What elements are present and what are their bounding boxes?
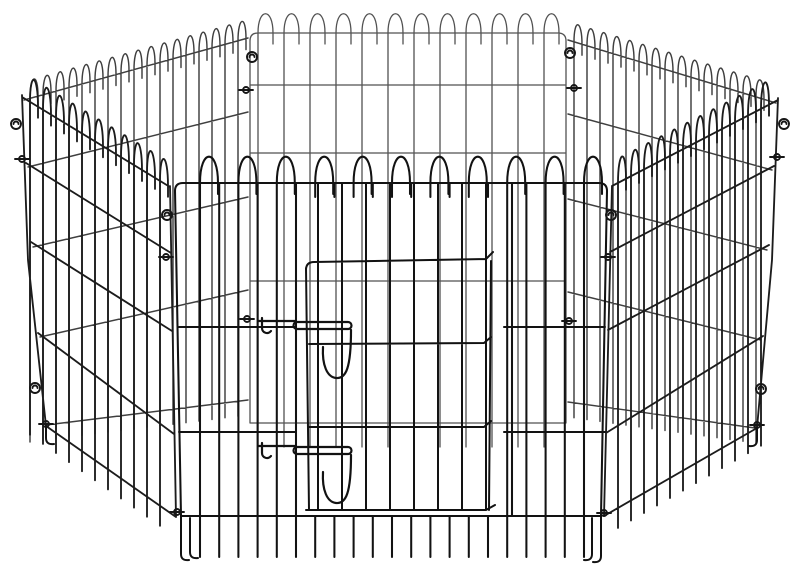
product-photo bbox=[0, 0, 800, 588]
back-right-panel bbox=[568, 25, 776, 443]
corner-hook-connectors bbox=[11, 48, 789, 516]
ground-feet bbox=[46, 426, 757, 562]
front-left-panel bbox=[22, 80, 176, 526]
back-panel bbox=[250, 14, 566, 447]
door-latch-lower bbox=[258, 443, 352, 503]
pen-svg bbox=[0, 0, 800, 588]
